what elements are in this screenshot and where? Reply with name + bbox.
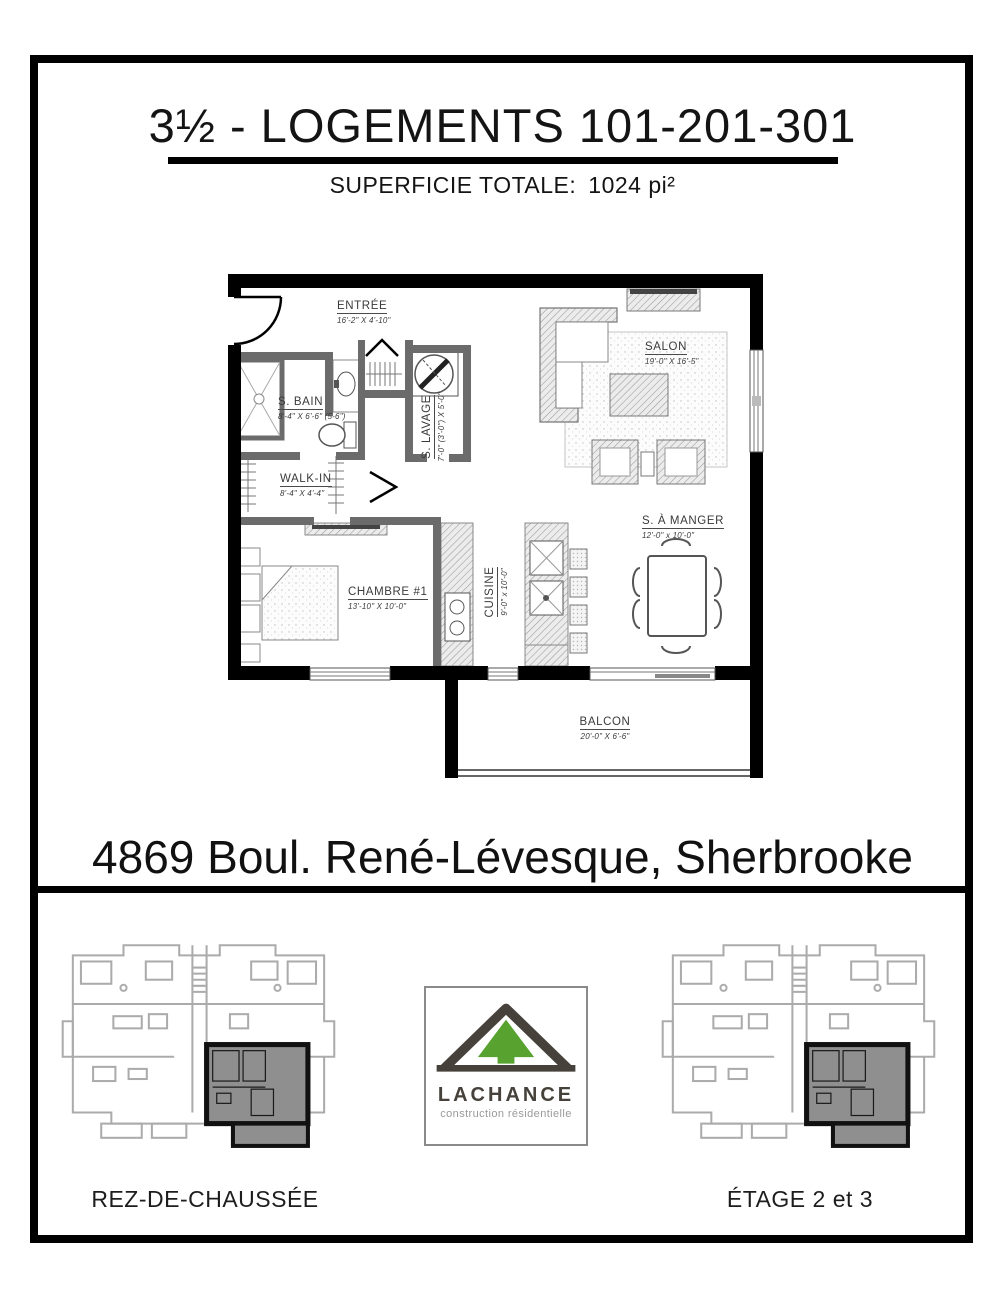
shower [236, 360, 282, 438]
room-label-slavage: S. LAVAGE 7'-0" (3'-0") X 5'-0" [413, 367, 453, 487]
footer-label-rez-de-chaussee: REZ-DE-CHAUSSÉE [55, 1186, 355, 1213]
address-underline-rule [35, 886, 965, 893]
room-label-walkin: WALK-IN 8'-4" X 4'-4" [280, 473, 332, 498]
bed [238, 548, 338, 662]
balcony-railing [458, 770, 750, 776]
logo-tagline: construction résidentielle [440, 1108, 571, 1120]
superficie-label: SUPERFICIE TOTALE: [330, 172, 577, 198]
interior-door-icon [370, 472, 396, 502]
logo-triangle-icon [431, 1000, 581, 1086]
superficie-value: 1024 pi² [588, 172, 675, 198]
closet-door-icon [366, 340, 398, 356]
mini-floorplan-upper [652, 925, 947, 1153]
footer-label-etage-2-3: ÉTAGE 2 et 3 [650, 1186, 950, 1213]
room-label-balcon: BALCON 20'-0" X 6'-6" [555, 716, 655, 741]
kitchen-counter [441, 523, 473, 666]
mini-floorplan-ground [52, 925, 347, 1153]
superficie-subtitle: SUPERFICIE TOTALE:1024 pi² [0, 172, 1005, 199]
title-underline-rule [168, 157, 838, 164]
page-title: 3½ - LOGEMENTS 101-201-301 [0, 98, 1005, 153]
room-label-entree: ENTRÉE 16'-2" X 4'-10" [337, 300, 391, 325]
logo-box: LACHANCE construction résidentielle [424, 986, 588, 1146]
room-label-chambre: CHAMBRE #1 13'-10" X 10'-0" [348, 586, 428, 611]
entry-door [234, 297, 281, 344]
floorplan-sheet: 3½ - LOGEMENTS 101-201-301 SUPERFICIE TO… [0, 0, 1005, 1300]
room-label-samanger: S. À MANGER 12'-0" x 10'-0" [642, 515, 724, 540]
kitchen-island [525, 523, 587, 666]
tv-unit [627, 289, 700, 311]
room-label-cuisine: CUISINE 9'-0" x 10'-0" [476, 532, 516, 652]
room-label-sbain: S. BAIN 8'-4" X 6'-6" (5-6") [278, 396, 346, 421]
closet-hangers [366, 362, 402, 386]
toilet [319, 422, 356, 448]
logo-name: LACHANCE [438, 1084, 574, 1107]
address: 4869 Boul. René-Lévesque, Sherbrooke [0, 830, 1005, 884]
room-label-salon: SALON 19'-0" X 16'-5" [645, 341, 699, 366]
dining-table [633, 539, 721, 653]
coffee-table [610, 374, 668, 416]
